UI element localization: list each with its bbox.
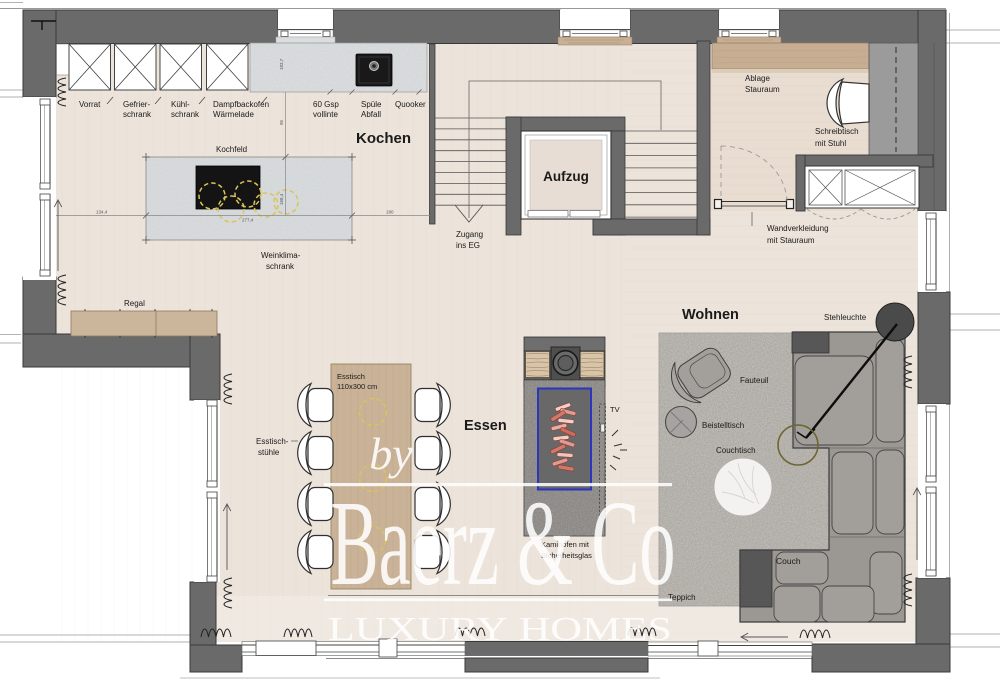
svg-text:180: 180 <box>386 210 394 215</box>
svg-text:Dampfbackofen: Dampfbackofen <box>213 100 269 109</box>
svg-text:Essen: Essen <box>464 418 507 434</box>
svg-text:168,4: 168,4 <box>279 193 284 205</box>
svg-text:Wohnen: Wohnen <box>682 307 739 323</box>
svg-text:Vorrat: Vorrat <box>79 100 101 109</box>
svg-text:LUXURY HOMES: LUXURY HOMES <box>328 611 672 648</box>
svg-text:Quooker: Quooker <box>395 100 426 109</box>
svg-text:Fauteuil: Fauteuil <box>740 376 769 385</box>
svg-text:Abfall: Abfall <box>361 110 381 119</box>
svg-text:277,4: 277,4 <box>242 218 254 223</box>
svg-text:Schreibtisch: Schreibtisch <box>815 127 859 136</box>
svg-text:Kochfeld: Kochfeld <box>216 145 247 154</box>
svg-text:Baerz & Co: Baerz & Co <box>331 476 676 611</box>
svg-text:134,4: 134,4 <box>96 210 108 215</box>
svg-text:Beistelltisch: Beistelltisch <box>702 421 744 430</box>
svg-text:ins EG: ins EG <box>456 241 480 250</box>
svg-text:Esstisch: Esstisch <box>337 372 365 381</box>
svg-text:schrank: schrank <box>171 110 200 119</box>
svg-text:mit Stauraum: mit Stauraum <box>767 236 815 245</box>
svg-text:Gefrier-: Gefrier- <box>123 100 150 109</box>
svg-text:Kochen: Kochen <box>356 130 411 147</box>
svg-text:Couchtisch: Couchtisch <box>716 446 756 455</box>
svg-text:by: by <box>369 428 413 479</box>
svg-text:Spüle: Spüle <box>361 100 382 109</box>
svg-text:schrank: schrank <box>266 262 295 271</box>
svg-text:Couch: Couch <box>776 556 801 566</box>
svg-text:mit Stuhl: mit Stuhl <box>815 139 846 148</box>
svg-text:Zugang: Zugang <box>456 230 483 239</box>
svg-text:vollinte: vollinte <box>313 110 338 119</box>
svg-text:Kühl-: Kühl- <box>171 100 190 109</box>
svg-text:stühle: stühle <box>258 448 280 457</box>
svg-text:183,7: 183,7 <box>279 58 284 70</box>
svg-text:schrank: schrank <box>123 110 152 119</box>
svg-text:Ablage: Ablage <box>745 74 770 83</box>
svg-text:Weinklima-: Weinklima- <box>261 251 301 260</box>
svg-text:60 Gsp: 60 Gsp <box>313 100 339 109</box>
svg-text:TV: TV <box>610 405 620 414</box>
svg-text:95: 95 <box>279 119 284 125</box>
svg-text:Aufzug: Aufzug <box>543 169 589 184</box>
svg-text:Stehleuchte: Stehleuchte <box>824 313 867 322</box>
svg-text:Wandverkleidung: Wandverkleidung <box>767 224 829 233</box>
svg-text:Regal: Regal <box>124 299 145 308</box>
svg-text:Stauraum: Stauraum <box>745 85 780 94</box>
svg-text:110x300 cm: 110x300 cm <box>337 382 377 391</box>
svg-text:Wärmelade: Wärmelade <box>213 110 254 119</box>
svg-text:Esstisch-: Esstisch- <box>256 437 289 446</box>
